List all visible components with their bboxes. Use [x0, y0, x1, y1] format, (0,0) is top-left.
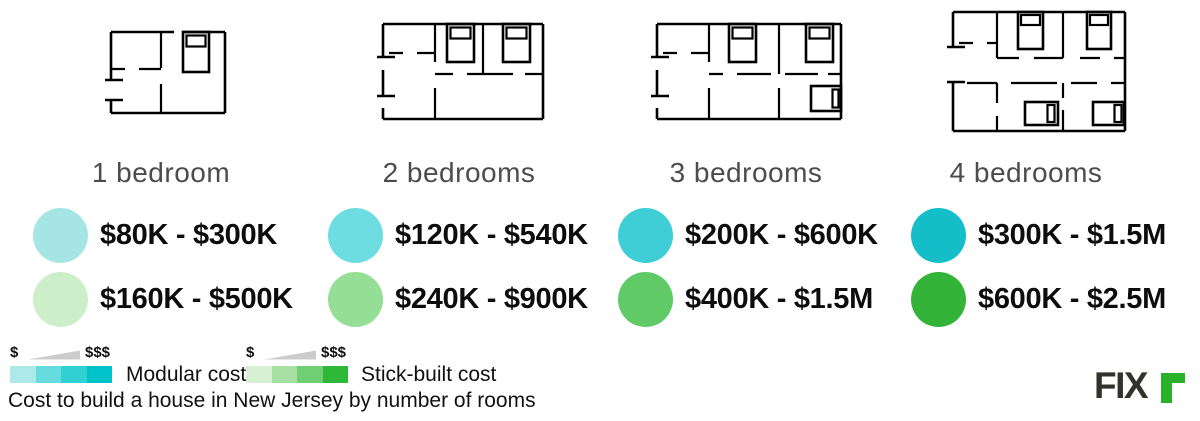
modular-range-1br: $80K - $300K — [100, 208, 277, 263]
floorplan-2-bedrooms-icon — [376, 20, 546, 122]
modular-seg-2 — [36, 366, 62, 383]
stick-seg-2 — [272, 366, 298, 383]
stick-range-2br: $240K - $900K — [395, 272, 588, 327]
label-2-bedrooms: 2 bedrooms — [349, 157, 569, 189]
stick-dot-2br — [328, 272, 383, 327]
stick-seg-4 — [323, 366, 349, 383]
floorplan-3-bedrooms-icon — [650, 20, 846, 122]
stick-dot-4br — [911, 272, 966, 327]
infographic-cost-by-rooms: 1 bedroom 2 bedrooms 3 bedrooms 4 bedroo… — [0, 0, 1200, 421]
modular-dot-3br — [618, 208, 673, 263]
chart-caption: Cost to build a house in New Jersey by n… — [8, 389, 536, 413]
stick-range-3br: $400K - $1.5M — [685, 272, 873, 327]
stick-scale-bar-icon — [246, 366, 348, 383]
stick-seg-1 — [246, 366, 272, 383]
stick-dot-3br — [618, 272, 673, 327]
stick-scale-wedge-icon — [264, 349, 316, 361]
stick-range-4br: $600K - $2.5M — [978, 272, 1166, 327]
fixr-r-shape — [1161, 373, 1185, 403]
modular-seg-4 — [87, 366, 113, 383]
stick-range-1br: $160K - $500K — [100, 272, 293, 327]
stick-legend-label: Stick-built cost — [361, 363, 496, 387]
label-3-bedrooms: 3 bedrooms — [636, 157, 856, 189]
fixr-logo-text: FIX — [1094, 368, 1147, 404]
fixr-logo-r-icon — [1161, 373, 1185, 403]
modular-scale-high: $$$ — [85, 344, 110, 361]
fixr-logo: FIX — [1094, 368, 1190, 408]
modular-scale-wedge-icon — [28, 349, 80, 361]
modular-legend-label: Modular cost — [126, 363, 246, 387]
stick-scale-low: $ — [246, 344, 254, 361]
modular-range-4br: $300K - $1.5M — [978, 208, 1166, 263]
modular-dot-4br — [911, 208, 966, 263]
stick-dot-1br — [33, 272, 88, 327]
modular-range-3br: $200K - $600K — [685, 208, 878, 263]
stick-seg-3 — [297, 366, 323, 383]
floorplan-1-bedroom-icon — [104, 28, 228, 116]
modular-scale-low: $ — [10, 344, 18, 361]
label-4-bedrooms: 4 bedrooms — [916, 157, 1136, 189]
modular-dot-1br — [33, 208, 88, 263]
modular-scale-bar-icon — [10, 366, 112, 383]
modular-seg-1 — [10, 366, 36, 383]
modular-seg-3 — [61, 366, 87, 383]
stick-scale-high: $$$ — [321, 344, 346, 361]
label-1-bedroom: 1 bedroom — [51, 157, 271, 189]
floorplan-4-bedrooms-icon — [946, 8, 1130, 136]
modular-dot-2br — [328, 208, 383, 263]
modular-range-2br: $120K - $540K — [395, 208, 588, 263]
